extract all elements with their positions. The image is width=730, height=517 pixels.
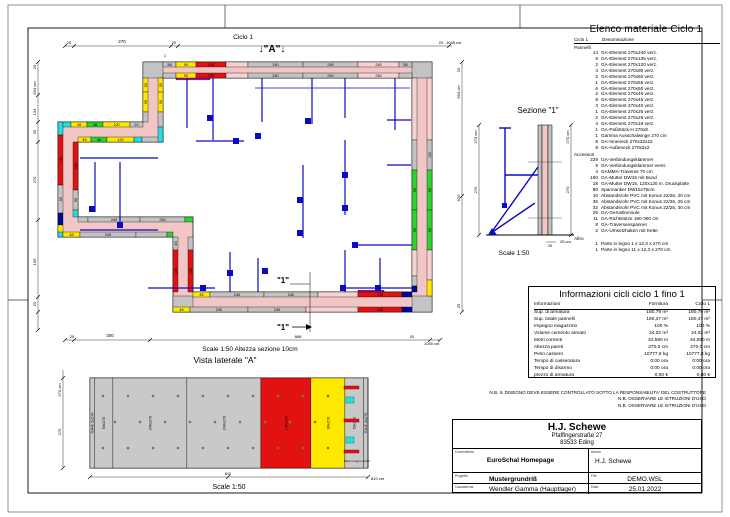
- info-value: 180,47 m²: [668, 317, 710, 324]
- brace-square: [207, 115, 213, 121]
- label: 810: [225, 472, 231, 476]
- label: 1045 cm: [424, 341, 440, 346]
- panel-size-label: 102: [428, 152, 432, 158]
- panel-size-label: 135x270: [284, 416, 288, 431]
- info-value: 34,580 m: [622, 338, 668, 345]
- panel: [412, 296, 432, 312]
- tie-hole: [302, 447, 305, 450]
- panel-size-label: 90: [184, 63, 188, 67]
- tie-hole: [289, 421, 292, 424]
- data-cell: Data 25.01.2022: [589, 484, 701, 495]
- panel-size-label: 240: [272, 74, 278, 78]
- brace-square: [200, 285, 206, 291]
- label: 694 cm: [456, 85, 461, 99]
- plan-title: Ciclo 1: [233, 34, 253, 41]
- panel-size-label: 90: [144, 100, 148, 104]
- cassaforma-label: Cassaforma: [455, 485, 473, 489]
- label: 25: [456, 303, 461, 308]
- label: 620: [456, 194, 461, 201]
- panel: [185, 217, 193, 222]
- tie-hole: [189, 421, 192, 424]
- panel-size-label: GA-E 2x270: [364, 413, 368, 434]
- panel: [427, 280, 432, 296]
- panel: [167, 232, 173, 237]
- label: 270: [57, 428, 62, 435]
- tie-hole: [177, 447, 180, 450]
- material-qty: 8: [572, 145, 598, 151]
- info-row: prezzo di armatura0,00 €0,00 €: [534, 373, 710, 380]
- title-block: H.J. Schewe Pfaffingerstraße 27 83533 Ed…: [452, 419, 702, 493]
- company-name: H.J. Schewe: [453, 420, 701, 433]
- panel-size-label: 22: [134, 123, 138, 127]
- disclaimer-line: N.B. OSSERVARE LE ISTRUZIONI D'USO: [420, 403, 706, 409]
- vista-title: Vista laterale "A": [193, 355, 256, 365]
- info-row: Peso cassero10777,8 kg10777,8 kg: [534, 352, 710, 359]
- panel: [412, 140, 417, 170]
- brace-square: [340, 285, 346, 291]
- label: 20: [32, 64, 37, 69]
- panel-size-label: 135: [174, 268, 178, 274]
- section-1-marker: "1": [277, 323, 289, 332]
- label: 25: [67, 40, 72, 45]
- label: 195: [32, 258, 37, 265]
- tie-rod: [344, 386, 359, 389]
- brace-square: [227, 270, 233, 276]
- label: 20: [456, 67, 461, 72]
- brace-square: [89, 206, 95, 212]
- brace-square: [262, 268, 268, 274]
- panel-size-label: 50: [59, 197, 63, 201]
- label: 20: [32, 301, 37, 306]
- panel: [143, 112, 148, 122]
- panel-size-label: 45: [69, 233, 73, 237]
- panel: [412, 78, 417, 140]
- info-name: Sup. totale pannelli: [534, 317, 622, 324]
- tie-hole: [152, 447, 155, 450]
- panel-size-label: 240: [327, 63, 333, 67]
- progetto-value: Mustergrundriß: [453, 473, 588, 483]
- panel: [136, 232, 167, 237]
- info-row: Tempo di casseratura0:00 ora0:00 ora: [534, 359, 710, 366]
- cassaforma-cell: Cassaforma Wendler Gamma (Hauptlager): [453, 484, 589, 495]
- panel: [188, 237, 193, 250]
- panel: [78, 217, 88, 222]
- panel-size-label: 240: [375, 74, 381, 78]
- material-name: GA-Außeneck 270x2x2: [598, 145, 649, 151]
- panel-size-label: 240: [105, 233, 111, 237]
- info-value: 270,0 cm: [622, 345, 668, 352]
- drawing-sheet: 5890135240240240589013524024024010290909…: [0, 0, 730, 517]
- panel-size-label: 58: [167, 63, 171, 67]
- panel-size-label: 240: [111, 218, 117, 222]
- panel-size-label: 120: [113, 123, 119, 127]
- panel-size-label: 50x270: [353, 417, 357, 429]
- brace-square: [342, 205, 348, 211]
- panel: [73, 210, 78, 217]
- label: 270 cm: [57, 383, 62, 397]
- panel: [538, 125, 542, 235]
- material-rows: Pannelli14GA-Element 270x240 verz.8GA-El…: [572, 45, 720, 253]
- label: 270: [565, 186, 570, 193]
- tie-hole: [202, 447, 205, 450]
- brace-square: [233, 138, 239, 144]
- material-col-ciclo: Ciclo 1: [574, 37, 602, 42]
- info-value: 180,47 m²: [622, 317, 668, 324]
- info-value: 10777,8 kg: [622, 352, 668, 359]
- brace-square: [255, 133, 261, 139]
- info-row: Volume cemento armato24,02 m³24,02 m³: [534, 331, 710, 338]
- info-value: 0:00 ora: [668, 359, 710, 366]
- progetto-label: Progetto: [455, 474, 468, 478]
- panel: [134, 137, 142, 142]
- tie-hole: [164, 421, 167, 424]
- company-city: 83533 Eding: [453, 440, 701, 447]
- tie-hole: [252, 395, 255, 398]
- autore-cell: Autore H.J. Schewe: [589, 449, 701, 472]
- panel: [412, 276, 417, 286]
- tie-rod: [344, 419, 359, 422]
- panel: [346, 397, 354, 403]
- info-value: 0,00 €: [668, 373, 710, 380]
- panel-size-label: 50: [144, 83, 148, 87]
- file-label: File: [591, 474, 596, 478]
- panel: [412, 250, 417, 276]
- file-value: DEMO.WSL: [589, 473, 701, 483]
- panel: [427, 250, 432, 280]
- panel-size-label: 90: [413, 188, 417, 192]
- info-value: 180,79 m²: [668, 310, 710, 317]
- info-value: 24,02 m³: [622, 331, 668, 338]
- autore-value: H.J. Schewe: [589, 449, 701, 465]
- material-item: 8GA-Außeneck 270x2x2: [572, 145, 720, 151]
- info-name: Altezza pareti: [534, 345, 622, 352]
- label: 25 cm: [560, 239, 572, 244]
- material-qty: 1: [572, 247, 598, 253]
- panel-size-label: 90: [159, 100, 163, 104]
- label: 25: [70, 334, 75, 339]
- cycle-info-table: Informazioni cicli ciclo 1 fino 1 Inform…: [528, 286, 716, 378]
- tie-hole: [139, 421, 142, 424]
- committente-label: Committente: [455, 450, 474, 454]
- label: 20: [439, 40, 444, 45]
- tie-hole: [202, 395, 205, 398]
- tie-hole: [302, 395, 305, 398]
- info-value: 100 %: [668, 324, 710, 331]
- panel: [399, 73, 412, 78]
- tie-hole: [114, 421, 117, 424]
- info-row: Metri correnti34,580 m34,580 m: [534, 338, 710, 345]
- panel: [158, 112, 163, 127]
- info-name: Sup. di armatura: [534, 310, 622, 317]
- label: 270: [473, 186, 478, 193]
- material-name: GA-Umsetzhaken mit Kette: [598, 228, 658, 234]
- panel-size-label: 45: [77, 123, 81, 127]
- panel-size-label: 135: [74, 163, 78, 169]
- panel: [143, 62, 163, 78]
- info-header-fornitura: Fornitura: [622, 302, 668, 309]
- panel-size-label: 240x270: [222, 416, 226, 431]
- info-header-informazioni: Informazioni: [534, 302, 622, 309]
- company-street: Pfaffingerstraße 27: [453, 433, 701, 440]
- disclaimer-notes: N.B. IL DISEGNO DEVE ESSERE CONTROLLATO …: [420, 390, 706, 409]
- info-name: Peso cassero: [534, 352, 622, 359]
- committente-cell: Committente EuroSchal Homepage: [453, 449, 589, 472]
- tie-hole: [327, 447, 330, 450]
- info-row: Impegno magazzino100 %100 %: [534, 324, 710, 331]
- panel: [226, 62, 248, 67]
- tie-hole: [227, 447, 230, 450]
- label: 1045 cm: [446, 40, 462, 45]
- panel-size-label: 90: [428, 188, 432, 192]
- info-value: 0:00 ora: [622, 359, 668, 366]
- brace-square: [375, 285, 381, 291]
- info-name: prezzo di armatura: [534, 373, 622, 380]
- info-header-ciclo: Ciclo 1: [668, 302, 710, 309]
- panel-size-label: 90x270: [326, 417, 330, 429]
- panel: [412, 62, 432, 78]
- tie-rod: [344, 450, 359, 453]
- label: 25: [548, 244, 552, 248]
- info-value: 34,580 m: [668, 338, 710, 345]
- panel: [158, 127, 163, 142]
- info-value: 10777,8 kg: [668, 352, 710, 359]
- panel: [176, 78, 210, 80]
- info-name: Tempo di disarmo: [534, 366, 622, 373]
- panel: [58, 232, 63, 237]
- info-row: Tempo di disarmo0:00 ora0:00 ora: [534, 366, 710, 373]
- brace-square: [342, 172, 348, 178]
- panel: [226, 73, 248, 78]
- panel-size-label: 135: [377, 308, 383, 312]
- info-name: Impegno magazzino: [534, 324, 622, 331]
- data-value: 25.01.2022: [589, 484, 701, 494]
- panel: [318, 292, 358, 297]
- tie-hole: [239, 421, 242, 424]
- panel: [542, 125, 548, 235]
- panel-size-label: 135: [208, 63, 214, 67]
- data-label: Data: [591, 485, 598, 489]
- panel-size-label: 50: [74, 198, 78, 202]
- tie-hole: [127, 395, 130, 398]
- brace-square: [297, 197, 303, 203]
- info-row: Altezza pareti270,0 cm270,0 cm: [534, 345, 710, 352]
- material-col-denominazione: Denominazione: [602, 37, 634, 42]
- label: 134: [32, 108, 37, 115]
- file-cell: File DEMO.WSL: [589, 473, 701, 483]
- panel-size-label: 240: [234, 293, 240, 297]
- tie-hole: [264, 421, 267, 424]
- label: 270: [118, 39, 126, 44]
- panel-size-label: 135: [189, 268, 193, 274]
- panel-size-label: GA-E 2x270: [91, 413, 95, 434]
- panel-size-label: 50: [159, 83, 163, 87]
- info-value: 270,0 cm: [668, 345, 710, 352]
- panel-size-label: 50x270: [102, 417, 106, 429]
- panel: [163, 73, 176, 78]
- panel-size-label: 240: [327, 74, 333, 78]
- tie-hole: [277, 447, 280, 450]
- panel-size-label: 90: [184, 74, 188, 78]
- cycle-info-rows: Sup. di armatura180,79 m²180,79 m²Sup. t…: [534, 310, 710, 380]
- autore-label: Autore: [591, 450, 601, 454]
- panel: [346, 437, 354, 443]
- panel: [63, 122, 71, 127]
- label: 25: [32, 129, 37, 134]
- material-list-header: Ciclo 1 Denominazione: [574, 37, 720, 44]
- panel-size-label: 90: [413, 228, 417, 232]
- tie-hole: [327, 395, 330, 398]
- section-1-marker: "1": [277, 276, 289, 285]
- panel: [402, 307, 412, 312]
- vista-caption: Scale 1:50: [212, 484, 245, 491]
- label: 20: [172, 40, 177, 45]
- info-name: Volume cemento armato: [534, 331, 622, 338]
- tie-hole: [102, 447, 105, 450]
- plan-caption: Scale 1:50 Altezza sezione 10cm: [202, 346, 297, 353]
- info-value: 180,79 m²: [622, 310, 668, 317]
- panel: [412, 286, 417, 292]
- label: 300: [106, 333, 114, 338]
- tie-hole: [214, 421, 217, 424]
- panel-size-label: 240x270: [148, 416, 152, 431]
- tie-hole: [227, 395, 230, 398]
- panel-size-label: 240: [375, 63, 381, 67]
- panel: [58, 213, 63, 225]
- panel-size-label: 135: [59, 157, 63, 163]
- panel: [548, 125, 552, 235]
- material-qty: 2: [572, 228, 598, 234]
- info-value: 24,02 m³: [668, 331, 710, 338]
- panel-size-label: 45: [82, 138, 86, 142]
- panel: [306, 307, 358, 312]
- panel: [58, 122, 63, 135]
- brace-square: [352, 242, 358, 248]
- panel-size-label: 45: [179, 308, 183, 312]
- panel-size-label: 46: [97, 138, 101, 142]
- brace-square: [117, 222, 123, 228]
- info-name: Metri correnti: [534, 338, 622, 345]
- tie-hole: [252, 447, 255, 450]
- panel-size-label: 46: [93, 123, 97, 127]
- tie-hole: [277, 395, 280, 398]
- info-name: Tempo di casseratura: [534, 359, 622, 366]
- label: 694 cm: [32, 81, 37, 95]
- material-list: Elenco materiale Ciclo 1 Ciclo 1 Denomin…: [572, 24, 720, 253]
- info-value: 100 %: [622, 324, 668, 331]
- label: 810 cm: [371, 476, 385, 481]
- label: Parte in legno 1x270: [344, 459, 370, 463]
- panel-size-label: 240: [159, 218, 165, 222]
- tie-hole: [177, 395, 180, 398]
- tie-hole: [314, 421, 317, 424]
- brace-square: [305, 118, 311, 124]
- material-item: 1Parte in legno 11 x 12,3 x 270 cm: [572, 247, 720, 253]
- brace-square: [502, 203, 507, 208]
- panel-size-label: 45: [199, 293, 203, 297]
- progetto-cell: Progetto Mustergrundriß: [453, 473, 589, 483]
- label: 270 cm: [565, 130, 570, 144]
- section-a-marker: ↓"A"↓: [259, 44, 286, 55]
- panel-size-label: 45: [174, 241, 178, 245]
- panel-size-label: 240: [274, 308, 280, 312]
- panel-size-label: 240: [288, 293, 294, 297]
- tie-hole: [152, 395, 155, 398]
- sezione-title: Sezione "1": [517, 106, 558, 115]
- panel: [427, 78, 432, 140]
- panel-size-label: 135: [208, 74, 214, 78]
- panel-size-label: 58: [403, 63, 407, 67]
- brace-square: [297, 230, 303, 236]
- label: 270 cm: [473, 130, 478, 144]
- cycle-info-title: Informazioni cicli ciclo 1 fino 1: [534, 289, 710, 300]
- label: 868: [295, 334, 302, 339]
- panel: [402, 292, 412, 297]
- material-name: Parte in legno 11 x 12,3 x 270 cm: [598, 247, 671, 253]
- title-block-company: H.J. Schewe Pfaffingerstraße 27 83533 Ed…: [453, 420, 701, 449]
- info-row: Sup. di armatura180,79 m²180,79 m²: [534, 310, 710, 317]
- info-value: 0,00 €: [622, 373, 668, 380]
- panel-size-label: 90: [428, 228, 432, 232]
- panel-size-label: 240: [272, 63, 278, 67]
- info-value: 0:00 ora: [668, 366, 710, 373]
- info-row: Sup. totale pannelli180,47 m²180,47 m²: [534, 317, 710, 324]
- tie-hole: [127, 447, 130, 450]
- label: 20: [410, 334, 415, 339]
- sezione-caption: Scale 1:50: [499, 250, 530, 257]
- material-item: 2GA-Umsetzhaken mit Kette: [572, 228, 720, 234]
- cycle-info-header: Informazioni Fornitura Ciclo 1: [534, 302, 710, 310]
- tie-hole: [102, 395, 105, 398]
- panel-size-label: 120: [117, 138, 123, 142]
- panel-size-label: 135: [377, 293, 383, 297]
- info-value: 0:00 ora: [622, 366, 668, 373]
- panel-size-label: 240: [216, 308, 222, 312]
- label: 270: [32, 176, 37, 183]
- material-list-title: Elenco materiale Ciclo 1: [572, 24, 720, 35]
